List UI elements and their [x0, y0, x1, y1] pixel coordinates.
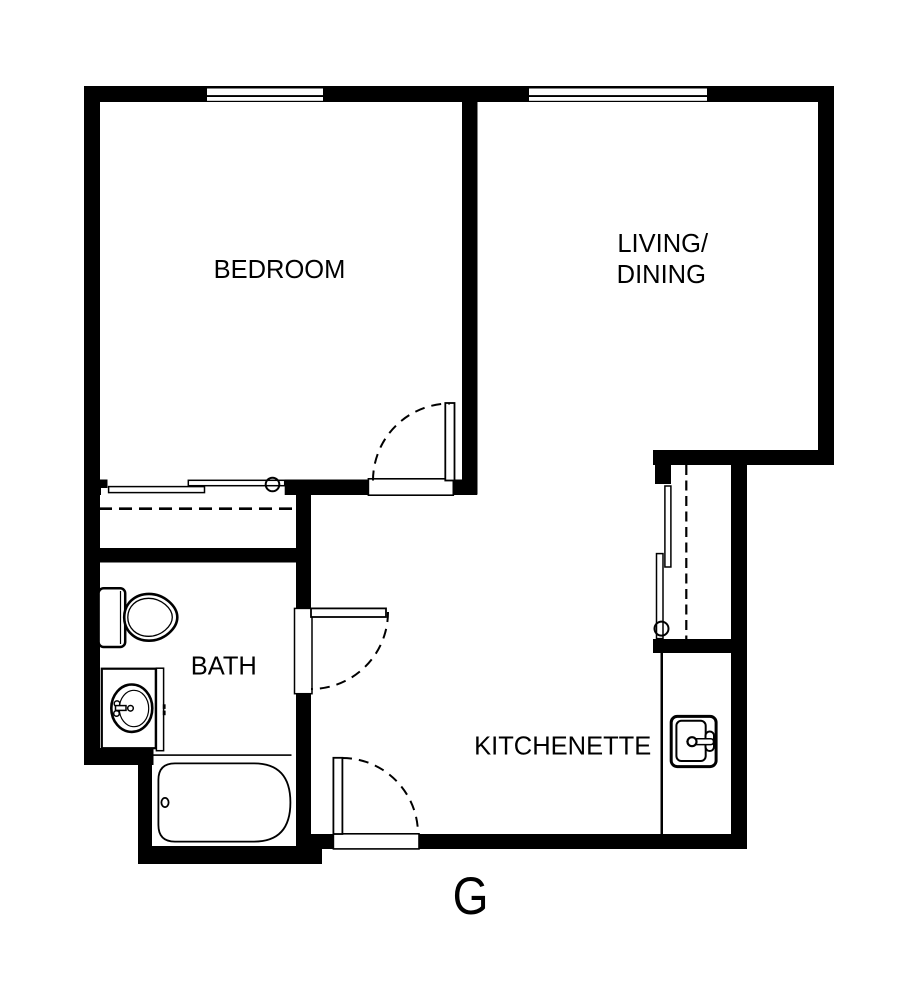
svg-text:KITCHENETTE: KITCHENETTE	[474, 732, 651, 760]
svg-text:BEDROOM: BEDROOM	[214, 256, 346, 284]
svg-text:G: G	[453, 866, 489, 926]
svg-text:LIVING/: LIVING/	[617, 230, 709, 258]
svg-text:DINING: DINING	[617, 261, 706, 289]
svg-text:BATH: BATH	[191, 653, 257, 681]
